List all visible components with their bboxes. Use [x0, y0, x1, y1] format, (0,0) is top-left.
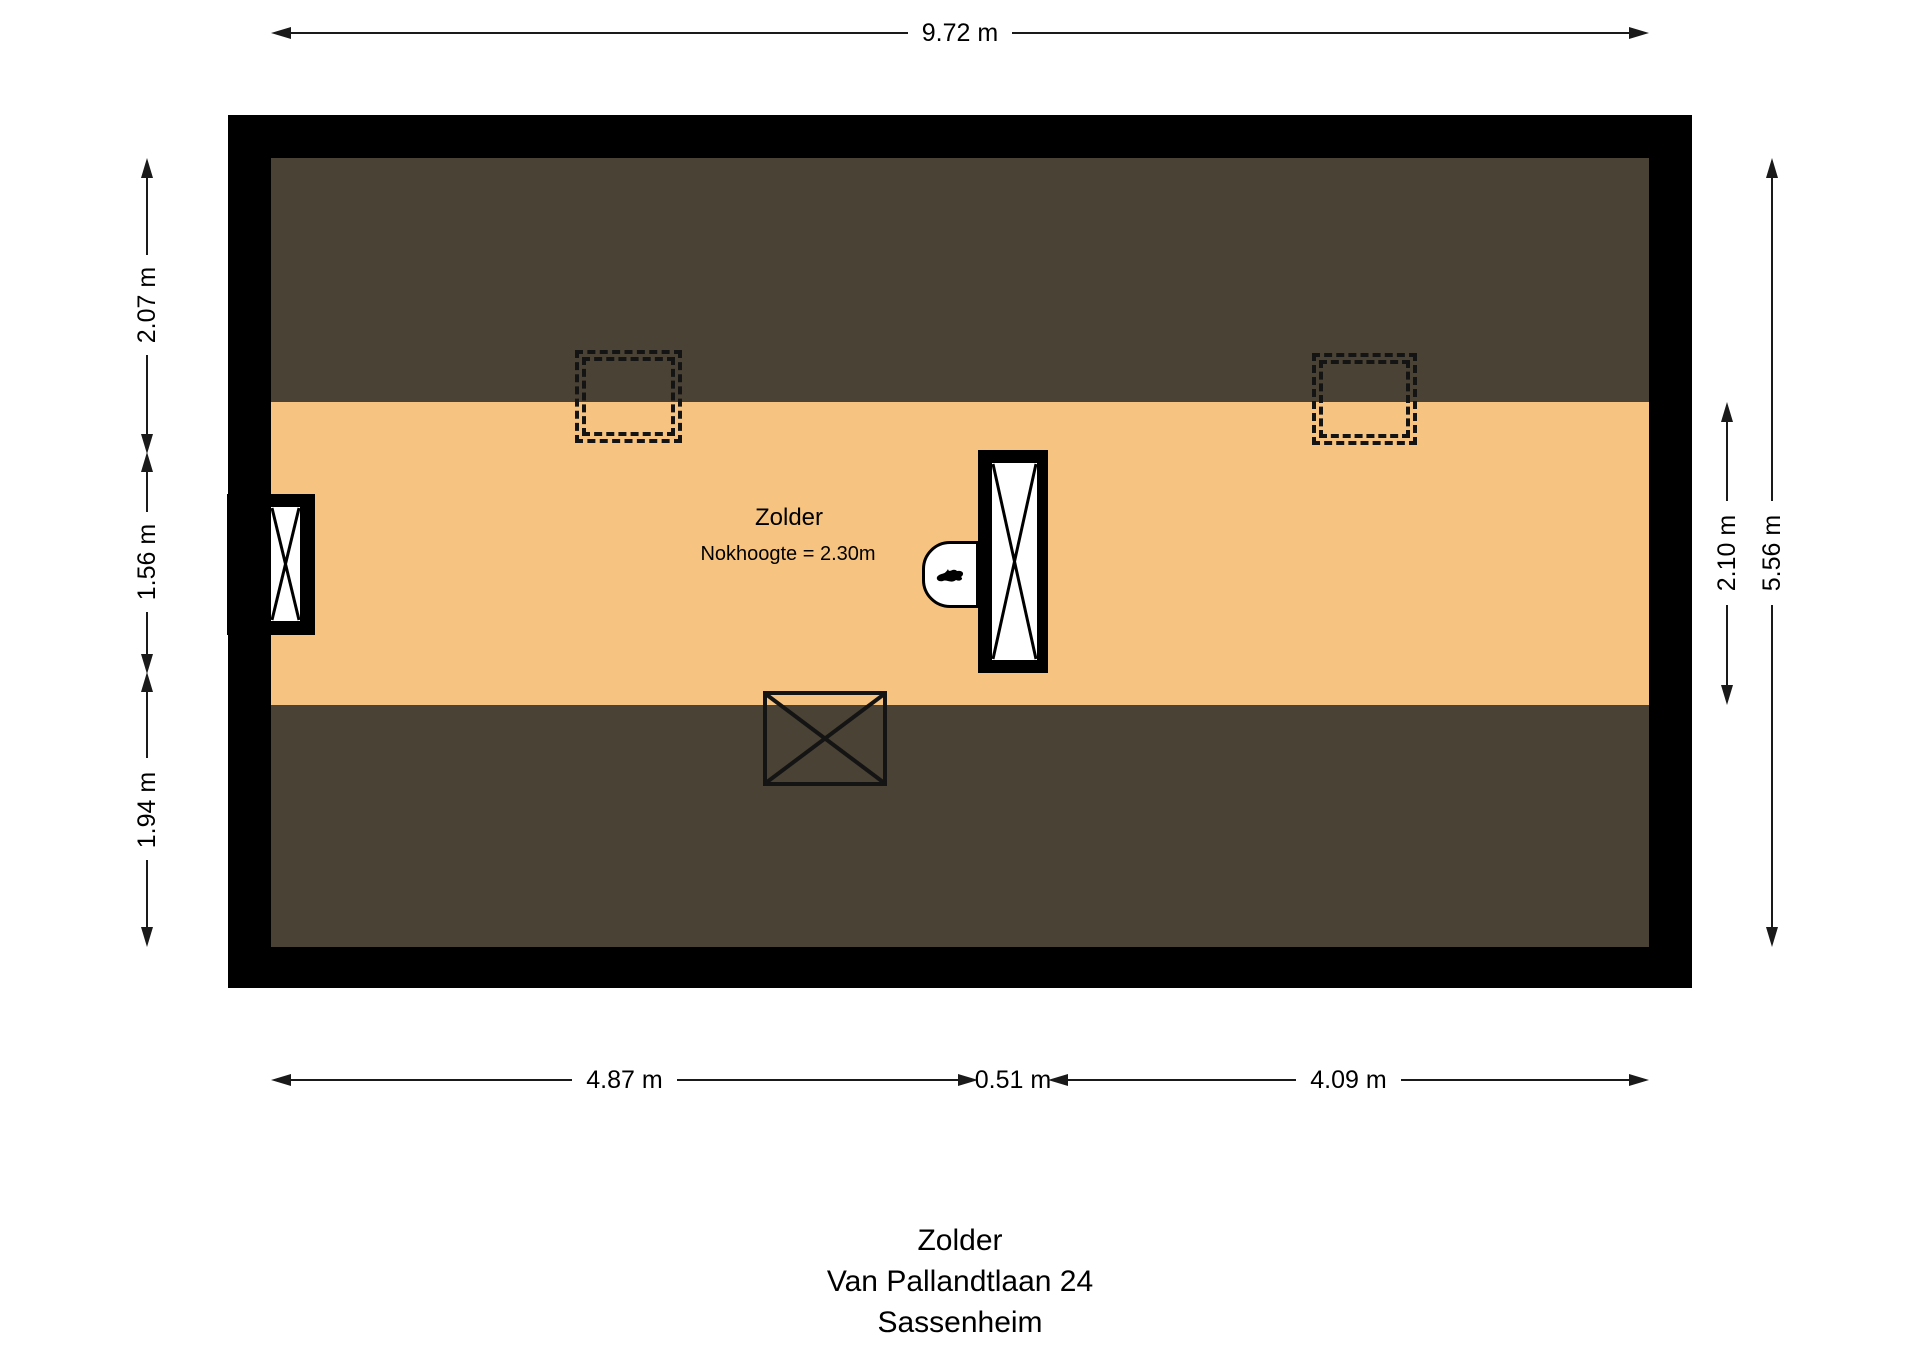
dimension-line: [291, 1079, 572, 1081]
arrow-down-icon: [1766, 927, 1778, 947]
room-name-label: Zolder: [689, 504, 889, 532]
dimension-line: [291, 32, 908, 34]
dimension-line: [1771, 605, 1773, 927]
dimension-line: [1771, 178, 1773, 501]
dimension-line: [146, 472, 148, 512]
stair-cross-icon: [767, 695, 883, 782]
title-room: Zolder: [660, 1220, 1260, 1261]
ridge-height-label: Nokhoogte = 2.30m: [638, 543, 938, 566]
floorplan-page: Zolder Nokhoogte = 2.30m 9.72 m 2.07 m 1…: [0, 0, 1920, 1358]
dimension-label-right-outer: 5.56 m: [1759, 503, 1785, 603]
dimension-line: [1401, 1079, 1629, 1081]
chimney-cross-icon: [992, 463, 1037, 660]
window-icon: [271, 507, 300, 621]
arrow-left-icon: [1048, 1074, 1068, 1086]
flame-icon: [936, 564, 966, 586]
window-cross-icon: [271, 507, 300, 621]
arrow-right-icon: [1629, 27, 1649, 39]
dimension-line: [1726, 422, 1728, 501]
dimension-line: [1726, 605, 1728, 685]
dimension-line: [1068, 1079, 1296, 1081]
skylight-left: [575, 350, 682, 443]
dimension-bottom-left: 4.87 m: [271, 1068, 978, 1092]
dimension-label-left-2: 1.56 m: [134, 512, 160, 612]
title-city: Sassenheim: [660, 1302, 1260, 1343]
arrow-down-icon: [1721, 685, 1733, 705]
sloped-ceiling-area-bottom: [271, 705, 1649, 947]
dimension-line: [146, 612, 148, 654]
dimension-line: [146, 692, 148, 758]
arrow-up-icon: [141, 452, 153, 472]
dimension-label-right-inner: 2.10 m: [1714, 503, 1740, 603]
arrow-left-icon: [271, 27, 291, 39]
dimension-top-width: 9.72 m: [271, 21, 1649, 45]
arrow-up-icon: [141, 158, 153, 178]
dimension-label-left-3: 1.94 m: [134, 760, 160, 860]
title-address: Van Pallandtlaan 24: [660, 1261, 1260, 1302]
dimension-line: [146, 178, 148, 255]
arrow-up-icon: [1766, 158, 1778, 178]
arrow-down-icon: [141, 434, 153, 454]
sloped-ceiling-area-top: [271, 158, 1649, 402]
skylight-left-inner-frame: [582, 357, 675, 436]
dimension-line: [146, 355, 148, 434]
dimension-label-bottom-3: 4.09 m: [1296, 1066, 1400, 1095]
arrow-down-icon: [141, 654, 153, 674]
arrow-left-icon: [271, 1074, 291, 1086]
arrow-down-icon: [141, 927, 153, 947]
dimension-bottom-right: 4.09 m: [1048, 1068, 1649, 1092]
arrow-right-icon: [1629, 1074, 1649, 1086]
dimension-label-left-1: 2.07 m: [134, 255, 160, 355]
dimension-line: [677, 1079, 958, 1081]
dimension-line: [1012, 32, 1629, 34]
dimension-label-top: 9.72 m: [908, 19, 1012, 48]
arrow-up-icon: [141, 672, 153, 692]
dimension-line: [146, 860, 148, 927]
dimension-label-bottom-1: 4.87 m: [572, 1066, 676, 1095]
skylight-right: [1312, 353, 1417, 445]
title-block: Zolder Van Pallandtlaan 24 Sassenheim: [660, 1220, 1260, 1343]
arrow-up-icon: [1721, 402, 1733, 422]
chimney-shaft-icon: [992, 463, 1037, 660]
stair-opening: [763, 691, 887, 786]
skylight-right-inner-frame: [1319, 360, 1410, 438]
